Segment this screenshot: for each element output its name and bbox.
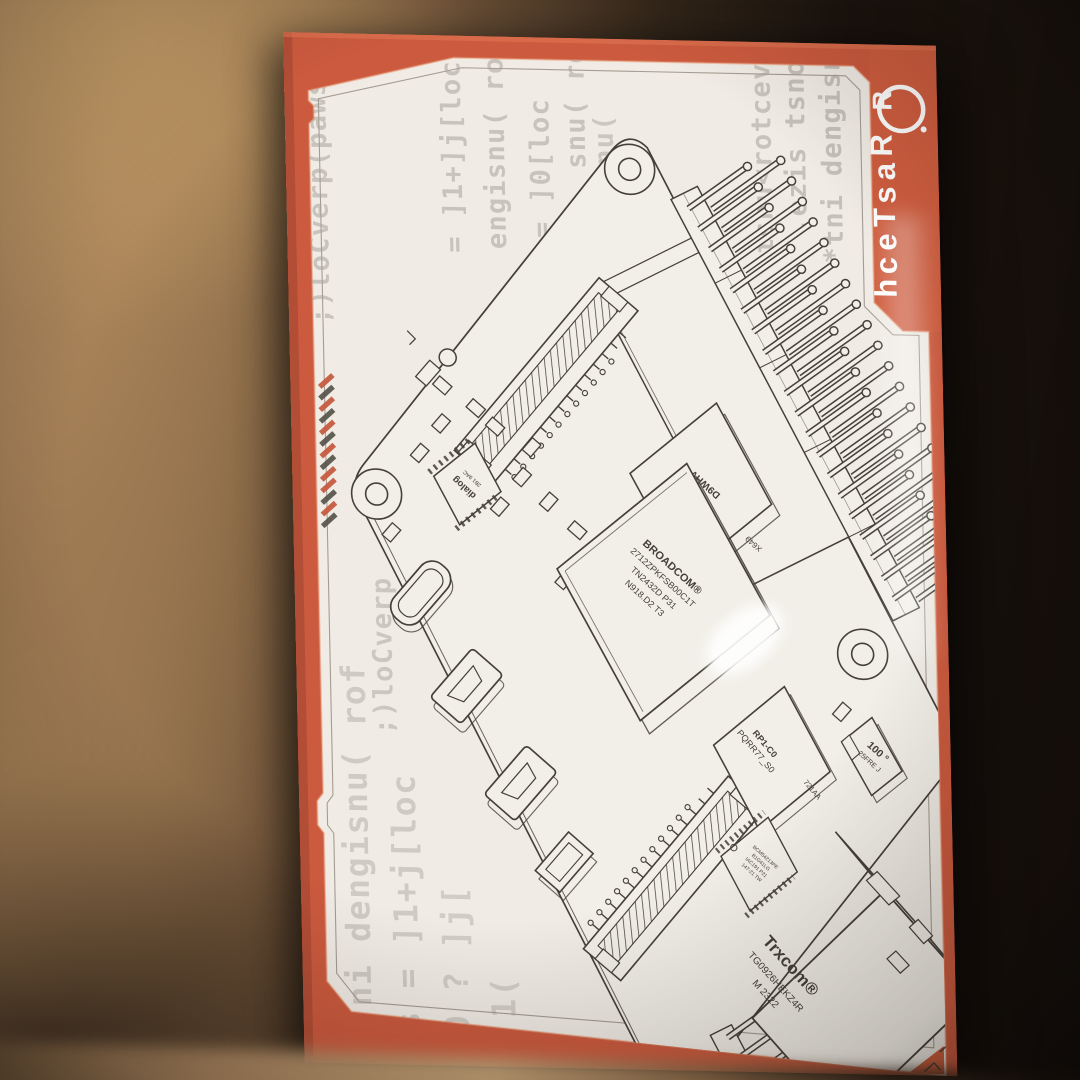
light-sheen xyxy=(874,214,941,656)
box-face-art: .swap(prevCol);prevCol);col[j]+1] =for (… xyxy=(283,32,957,1076)
product-box: .swap(prevCol);prevCol);col[j]+1] =for (… xyxy=(283,32,957,1076)
code-line: col[j]+1] = xyxy=(435,61,470,253)
photo-scene: .swap(prevCol);prevCol);col[j]+1] =for (… xyxy=(0,0,1080,1080)
logo-mark-letter: R xyxy=(867,91,897,111)
wifi-cap xyxy=(439,349,456,366)
